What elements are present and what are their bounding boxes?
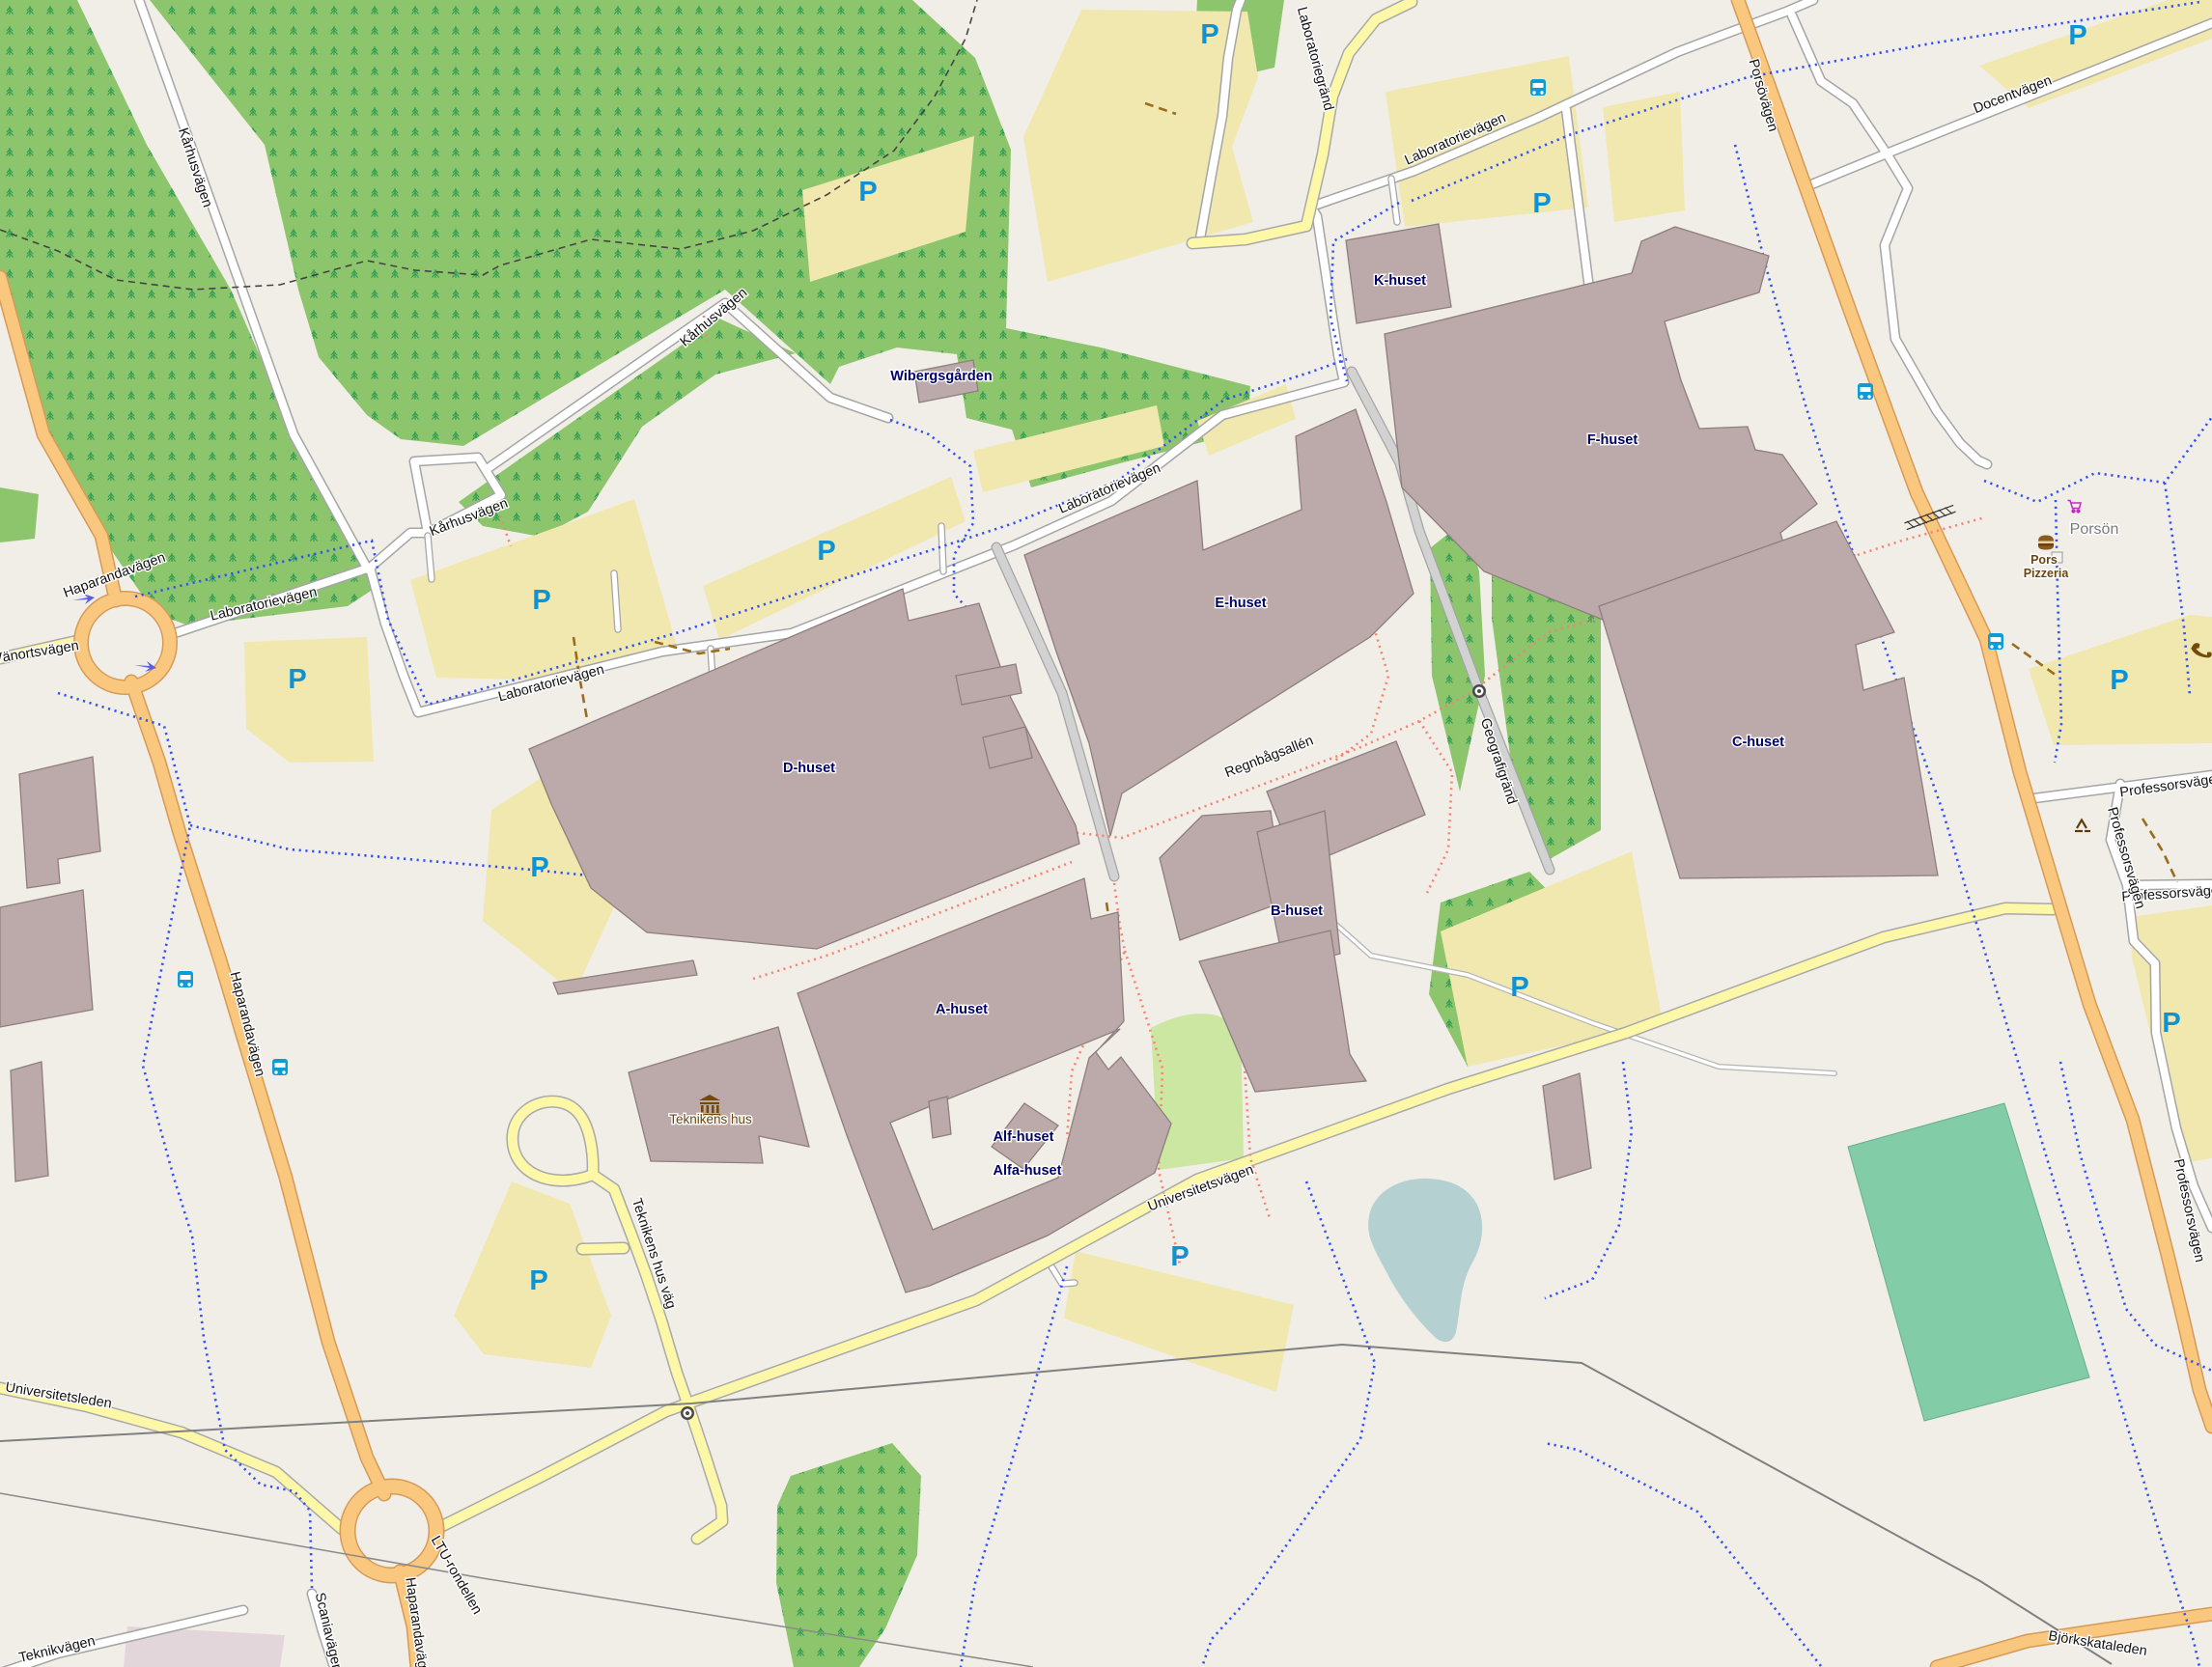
svg-text:Pizzeria: Pizzeria: [2024, 567, 2070, 580]
svg-text:P: P: [530, 852, 548, 883]
svg-text:Teknikens hus: Teknikens hus: [669, 1112, 752, 1126]
svg-text:K-huset: K-huset: [1374, 273, 1426, 289]
svg-text:P: P: [288, 664, 306, 695]
svg-text:P: P: [1510, 972, 1528, 1003]
svg-text:P: P: [1170, 1241, 1189, 1272]
svg-text:E-huset: E-huset: [1215, 596, 1266, 611]
svg-text:P: P: [529, 1265, 547, 1296]
svg-text:A-huset: A-huset: [936, 1002, 988, 1017]
svg-text:Wibergsgården: Wibergsgården: [890, 369, 992, 384]
svg-text:P: P: [2110, 665, 2128, 696]
svg-text:Porsön: Porsön: [2070, 521, 2119, 538]
svg-text:Alfa-huset: Alfa-huset: [994, 1163, 1062, 1179]
svg-text:D-huset: D-huset: [783, 761, 835, 776]
svg-text:P: P: [1532, 188, 1551, 219]
svg-text:P: P: [858, 177, 877, 208]
svg-text:P: P: [1200, 19, 1218, 50]
svg-text:P: P: [532, 585, 550, 616]
svg-text:P: P: [2162, 1008, 2180, 1039]
svg-text:P: P: [817, 536, 835, 567]
svg-text:Pors: Pors: [2030, 553, 2058, 567]
svg-text:P: P: [2068, 20, 2086, 51]
svg-text:F-huset: F-huset: [1587, 432, 1638, 448]
svg-text:C-huset: C-huset: [1732, 735, 1784, 750]
svg-text:B-huset: B-huset: [1271, 903, 1323, 919]
svg-text:Alf-huset: Alf-huset: [994, 1129, 1054, 1145]
